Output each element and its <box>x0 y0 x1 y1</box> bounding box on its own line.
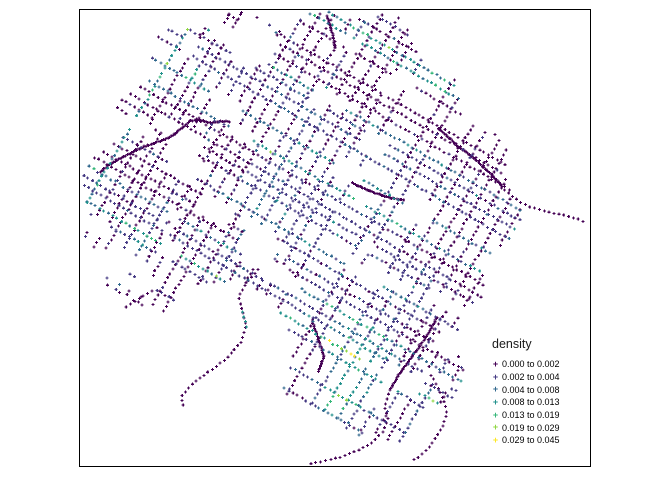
legend: density + 0.000 to 0.002 + 0.002 to 0.00… <box>491 337 560 447</box>
density-map <box>0 0 672 480</box>
legend-marker-icon: + <box>491 436 500 445</box>
legend-item: + 0.000 to 0.002 <box>491 358 560 371</box>
legend-marker-icon: + <box>491 423 500 432</box>
figure: density + 0.000 to 0.002 + 0.002 to 0.00… <box>0 0 672 480</box>
legend-item: + 0.013 to 0.019 <box>491 409 560 422</box>
legend-item: + 0.008 to 0.013 <box>491 396 560 409</box>
legend-marker-icon: + <box>491 385 500 394</box>
legend-marker-icon: + <box>491 360 500 369</box>
legend-item: + 0.002 to 0.004 <box>491 371 560 384</box>
legend-marker-icon: + <box>491 411 500 420</box>
density-points-class-3 <box>85 11 521 437</box>
legend-marker-icon: + <box>491 373 500 382</box>
legend-title: density <box>492 337 560 351</box>
density-points-class-4 <box>86 14 516 417</box>
legend-marker-icon: + <box>491 398 500 407</box>
legend-item: + 0.029 to 0.045 <box>491 434 560 447</box>
legend-item: + 0.004 to 0.008 <box>491 383 560 396</box>
legend-item: + 0.019 to 0.029 <box>491 421 560 434</box>
